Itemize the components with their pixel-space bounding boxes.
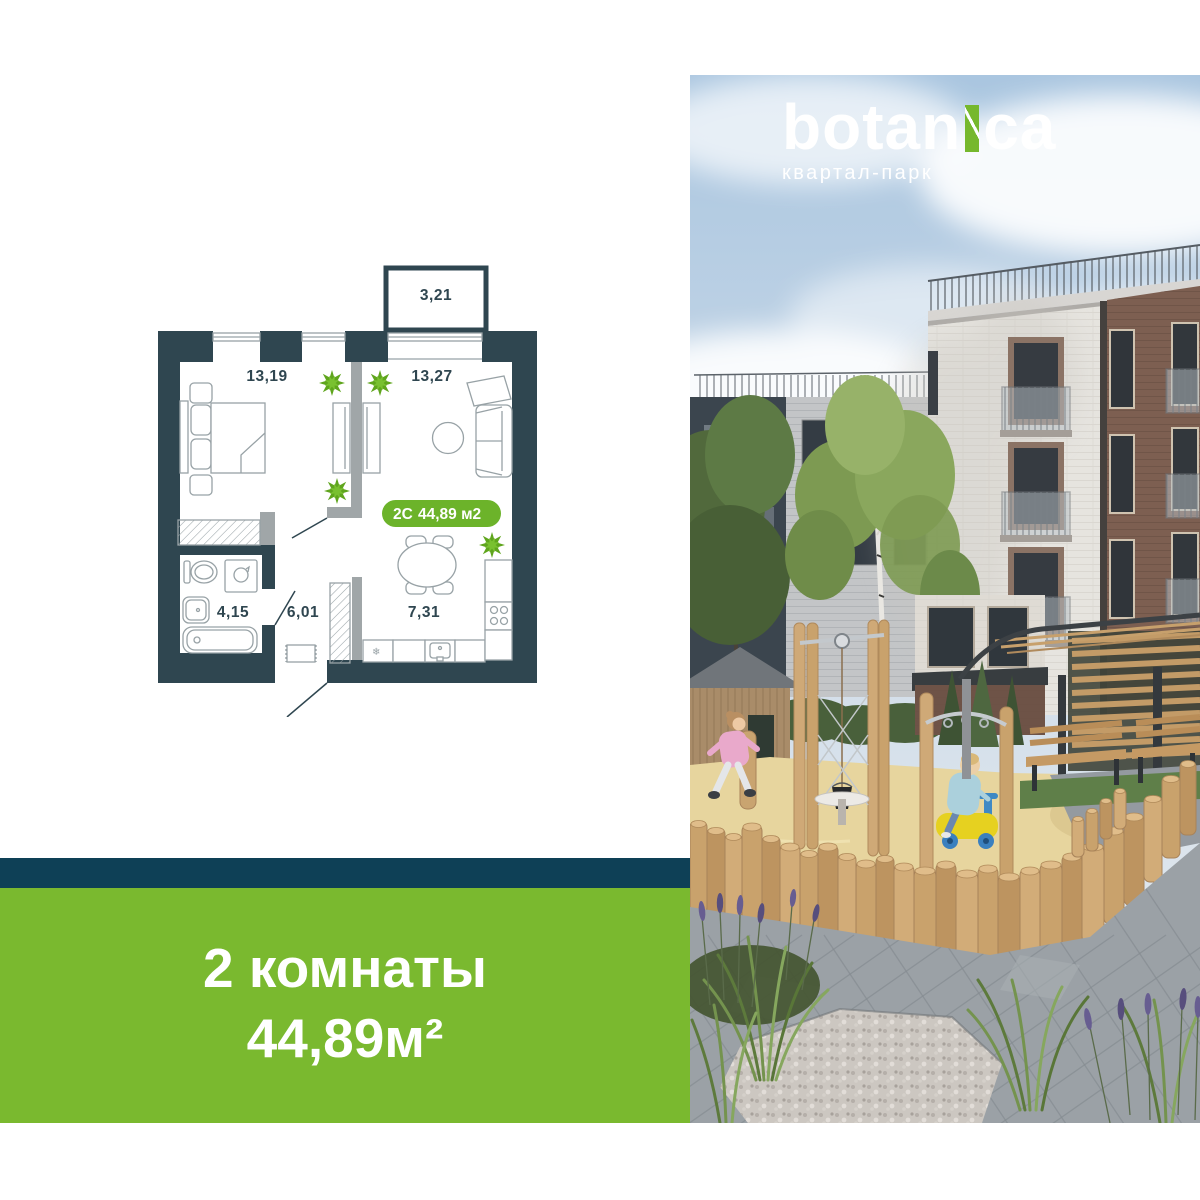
offer-banner: 2 комнаты 44,89м² xyxy=(0,888,690,1123)
fridge-icon: ❄ xyxy=(372,647,380,658)
room-label-balcony: 3,21 xyxy=(420,287,452,304)
navy-stripe xyxy=(0,858,690,888)
plant-icon xyxy=(324,478,350,504)
logo-text-left: botan xyxy=(782,103,961,153)
plant-icon xyxy=(367,370,393,396)
room-label-kitchen: 7,31 xyxy=(408,604,440,621)
plant-icon xyxy=(479,532,505,558)
plant-icon xyxy=(319,370,345,396)
dining-table xyxy=(398,536,456,594)
courtyard-photo: botan ca квартал-парк xyxy=(690,75,1200,1123)
room-label-bathroom: 4,15 xyxy=(217,604,249,621)
balcony: 3,21 xyxy=(386,268,486,330)
unit-badge: 2C 44,89 м2 xyxy=(382,500,501,527)
tv-stand xyxy=(467,376,511,406)
offer-area: 44,89м² xyxy=(247,1003,444,1073)
brand-subtitle: квартал-парк xyxy=(782,162,1056,185)
unit-badge-area: 44,89 м2 xyxy=(418,506,481,523)
hall-closet xyxy=(330,583,350,663)
room-label-hallway: 6,01 xyxy=(287,604,319,621)
promo-card: 3,21 xyxy=(0,0,1200,1200)
room-label-living-room: 13,27 xyxy=(411,368,452,385)
offer-rooms: 2 комнаты xyxy=(203,933,487,1003)
brand-logo: botan ca квартал-парк xyxy=(782,103,1056,185)
room-label-bedroom: 13,19 xyxy=(246,368,287,385)
bed xyxy=(180,383,265,495)
sink xyxy=(183,597,209,623)
rug xyxy=(286,645,316,662)
courtyard-scene xyxy=(690,75,1200,1123)
unit-badge-type: 2C xyxy=(393,506,413,523)
bathtub xyxy=(183,627,257,653)
entry-door xyxy=(287,683,327,717)
floor-plan: 3,21 xyxy=(145,255,555,717)
toilet xyxy=(184,561,217,583)
bedroom-closet xyxy=(178,520,260,545)
logo-text-right: ca xyxy=(983,103,1056,153)
coffee-table xyxy=(433,423,464,454)
washing-machine xyxy=(225,560,257,592)
sofa xyxy=(476,405,512,477)
logo-leaf-i-icon xyxy=(965,105,979,152)
pulley xyxy=(835,634,849,648)
